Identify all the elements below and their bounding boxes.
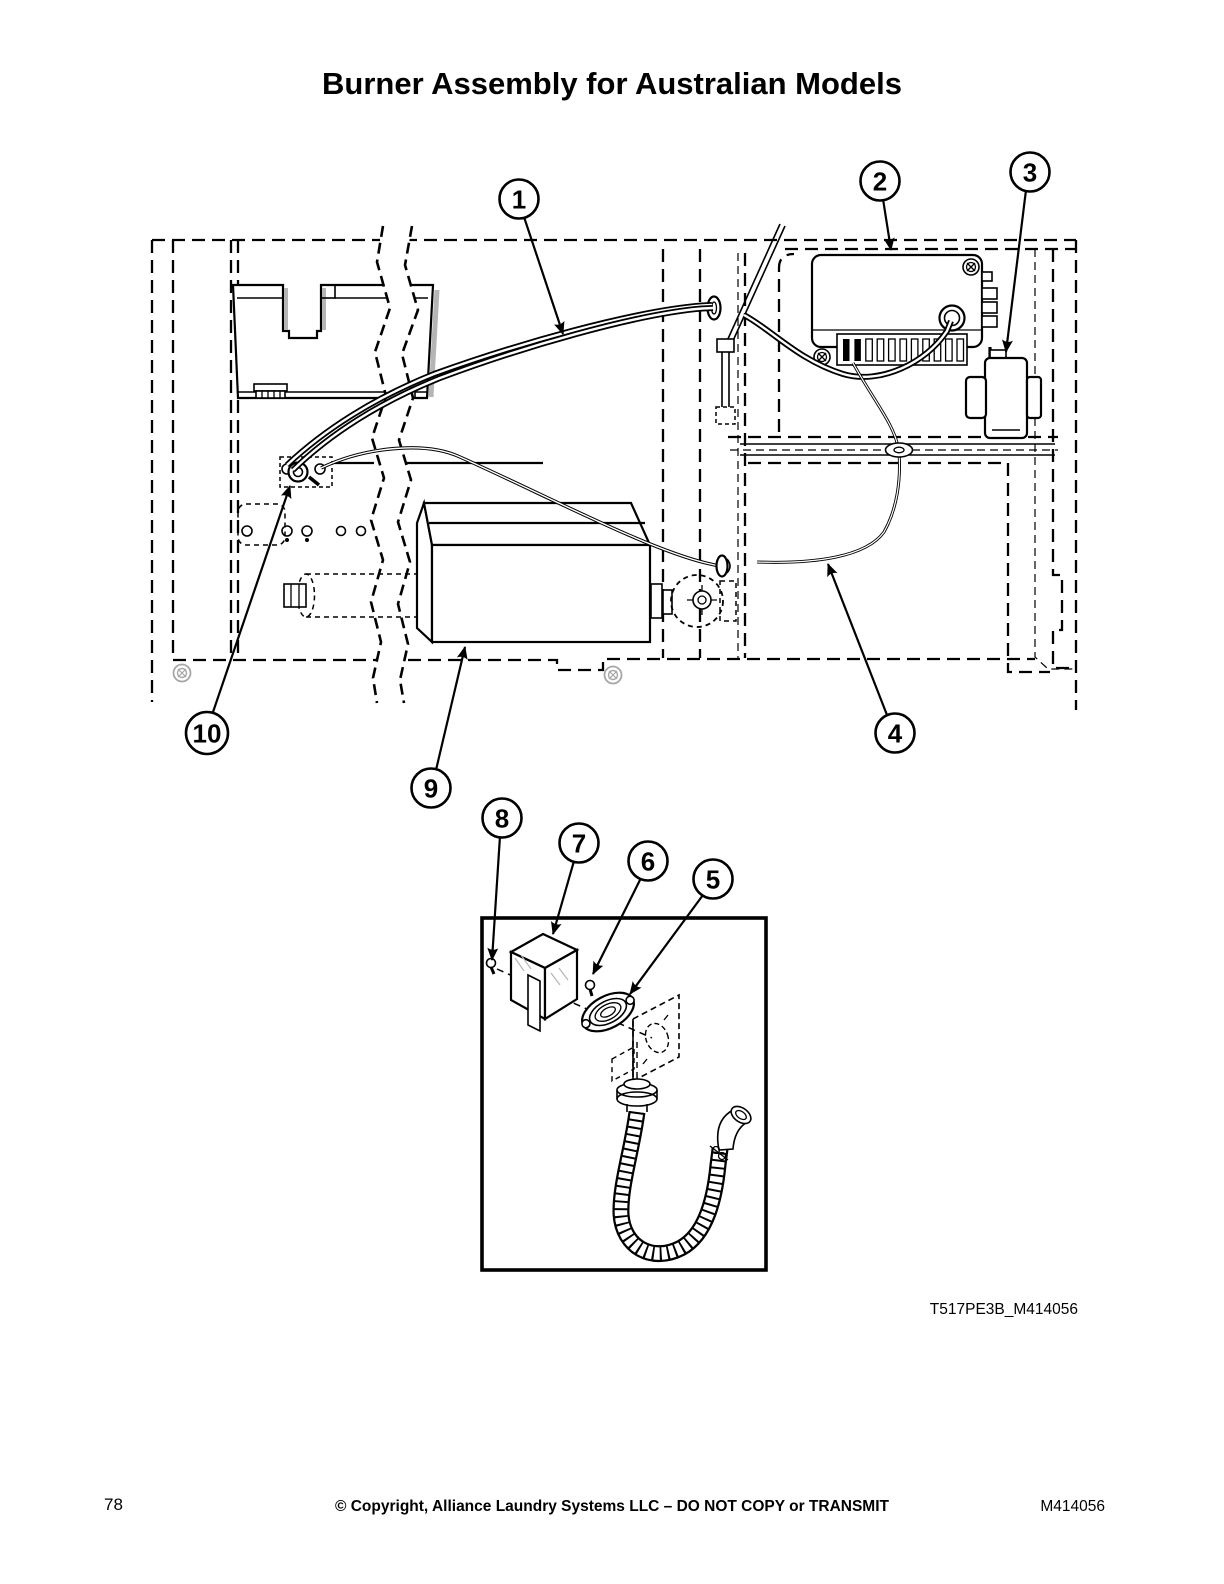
callout-6: 6 (629, 842, 668, 881)
callout-5: 5 (694, 860, 733, 899)
callout-8-label: 8 (495, 804, 509, 834)
ignition-control (812, 255, 997, 365)
footer-doc-number: M414056 (1040, 1498, 1105, 1516)
burner-assembly-diagram: 1 2 3 4 5 6 7 8 9 10 (0, 0, 1224, 1584)
callout-9: 9 (412, 769, 451, 808)
callout-2-label: 2 (873, 167, 887, 197)
callout-4: 4 (876, 714, 915, 753)
burner-housing (417, 503, 650, 642)
sensor-bracket (708, 224, 786, 424)
callout-3-label: 3 (1023, 158, 1037, 188)
callout-1-label: 1 (512, 185, 526, 215)
callout-10: 10 (186, 712, 228, 754)
callout-6-label: 6 (641, 847, 655, 877)
callout-7-label: 7 (572, 829, 586, 859)
callout-1: 1 (500, 180, 539, 219)
callout-4-label: 4 (888, 719, 903, 749)
callout-5-label: 5 (706, 865, 720, 895)
figure-code: T517PE3B_M414056 (930, 1301, 1078, 1319)
screw-icon (174, 665, 191, 682)
callout-8: 8 (483, 799, 522, 838)
callout-7: 7 (560, 824, 599, 863)
screw-icon (605, 667, 622, 684)
gas-valve (966, 350, 1041, 438)
callout-9-label: 9 (424, 774, 438, 804)
callout-10-label: 10 (193, 719, 222, 749)
callout-2: 2 (861, 162, 900, 201)
callout-3: 3 (1011, 153, 1050, 192)
screw-icon (963, 259, 979, 275)
manual-page: Burner Assembly for Australian Models (0, 0, 1224, 1584)
igniter-detail-inset (482, 918, 766, 1270)
